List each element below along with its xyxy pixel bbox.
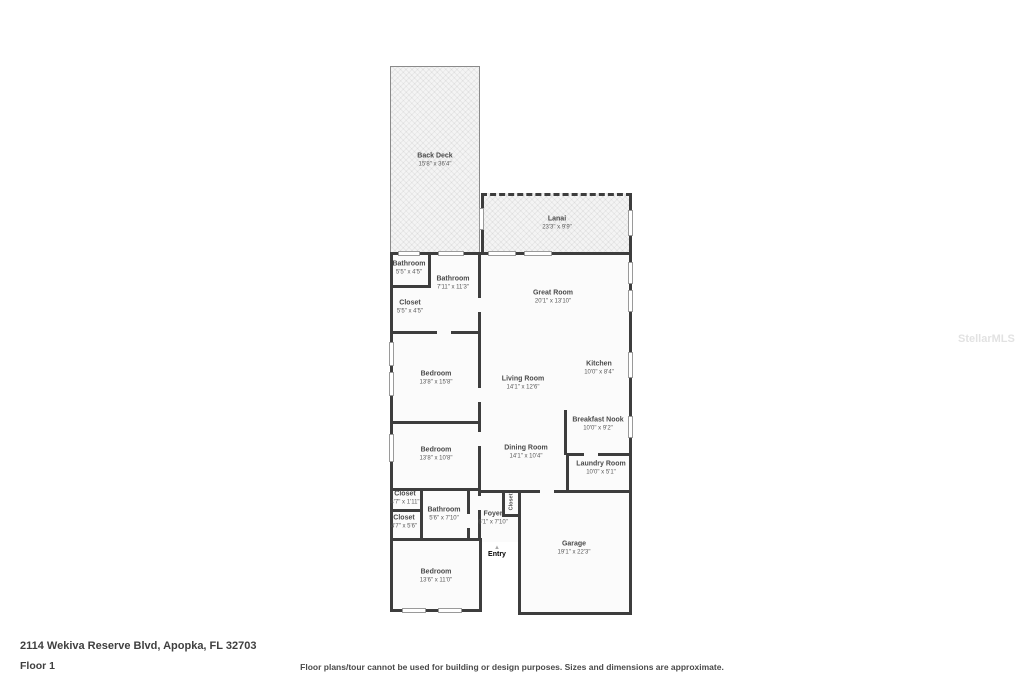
wall — [420, 490, 423, 540]
window — [488, 251, 516, 256]
wall — [428, 252, 431, 288]
door-opening — [477, 298, 482, 312]
room-label-bedroom-middle: Bedroom 13'8" x 10'8" — [420, 447, 453, 464]
door-opening — [540, 489, 554, 494]
door-opening — [477, 496, 482, 510]
wall — [566, 453, 632, 456]
door-opening — [584, 452, 598, 457]
wall — [518, 612, 632, 615]
wall — [390, 331, 481, 334]
room-label-bedroom-top: Bedroom 13'8" x 15'8" — [420, 371, 453, 388]
wall — [390, 540, 393, 612]
window — [628, 262, 633, 284]
room-label-dining-room: Dining Room 14'1" x 10'4" — [504, 445, 548, 462]
room-label-great-room: Great Room 20'1" x 13'10" — [533, 290, 573, 307]
room-label-garage: Garage 19'1" x 22'3" — [558, 541, 591, 558]
window — [438, 251, 464, 256]
room-label-laundry-room: Laundry Room 10'0" x 5'1" — [576, 461, 625, 478]
wall — [564, 410, 567, 455]
room-label-foyer: Foyer 6'1" x 7'10" — [478, 511, 508, 528]
room-label-bedroom-bottom: Bedroom 13'6" x 11'0" — [420, 569, 452, 586]
window — [389, 434, 394, 462]
window — [628, 210, 633, 236]
room-label-kitchen: Kitchen 10'0" x 8'4" — [584, 361, 614, 378]
door-opening — [437, 330, 451, 335]
window — [402, 608, 426, 613]
room-label-back-deck: Back Deck 15'8" x 36'4" — [417, 153, 452, 170]
wall — [479, 540, 482, 612]
wall — [566, 453, 569, 493]
window — [438, 608, 462, 613]
window — [398, 251, 420, 256]
floor-plan: Back Deck 15'8" x 36'4" Lanai 23'3" x 9'… — [0, 0, 1024, 682]
room-label-lanai: Lanai 23'3" x 9'9" — [542, 216, 572, 233]
property-address: 2114 Wekiva Reserve Blvd, Apopka, FL 327… — [20, 640, 256, 652]
wall — [390, 509, 423, 512]
mls-watermark: StellarMLS — [958, 333, 1015, 345]
room-label-breakfast-nook: Breakfast Nook 10'0" x 9'2" — [572, 417, 623, 434]
window — [389, 372, 394, 396]
window — [479, 208, 484, 230]
door-opening — [466, 514, 471, 528]
room-label-living-room: Living Room 14'1" x 12'6" — [502, 376, 544, 393]
entry-label: Entry — [488, 551, 506, 559]
room-label-bathroom-main: Bathroom 7'11" x 11'3" — [436, 276, 469, 293]
door-opening — [477, 388, 482, 402]
wall — [629, 490, 632, 615]
room-label-closet-top: Closet 5'5" x 4'5" — [397, 300, 423, 317]
room-label-bathroom-lower: Bathroom 5'6" x 7'10" — [427, 507, 460, 524]
disclaimer-text: Floor plans/tour cannot be used for buil… — [0, 662, 1024, 672]
entry-marker: ▲ Entry — [488, 545, 506, 559]
room-label-bathroom-top: Bathroom 5'5" x 4'5" — [392, 261, 425, 278]
wall — [390, 285, 431, 288]
room-label-closet-foyer: Closet — [509, 494, 516, 511]
window — [524, 251, 552, 256]
room-label-closet-lower: Closet 4'7" x 5'6" — [391, 515, 417, 532]
window — [628, 416, 633, 438]
wall — [518, 490, 521, 615]
window — [628, 290, 633, 312]
room-label-closet-small: Closet 4'7" x 1'11" — [390, 491, 419, 508]
window — [389, 342, 394, 366]
window — [628, 352, 633, 378]
wall — [390, 421, 481, 424]
door-opening — [477, 432, 482, 446]
